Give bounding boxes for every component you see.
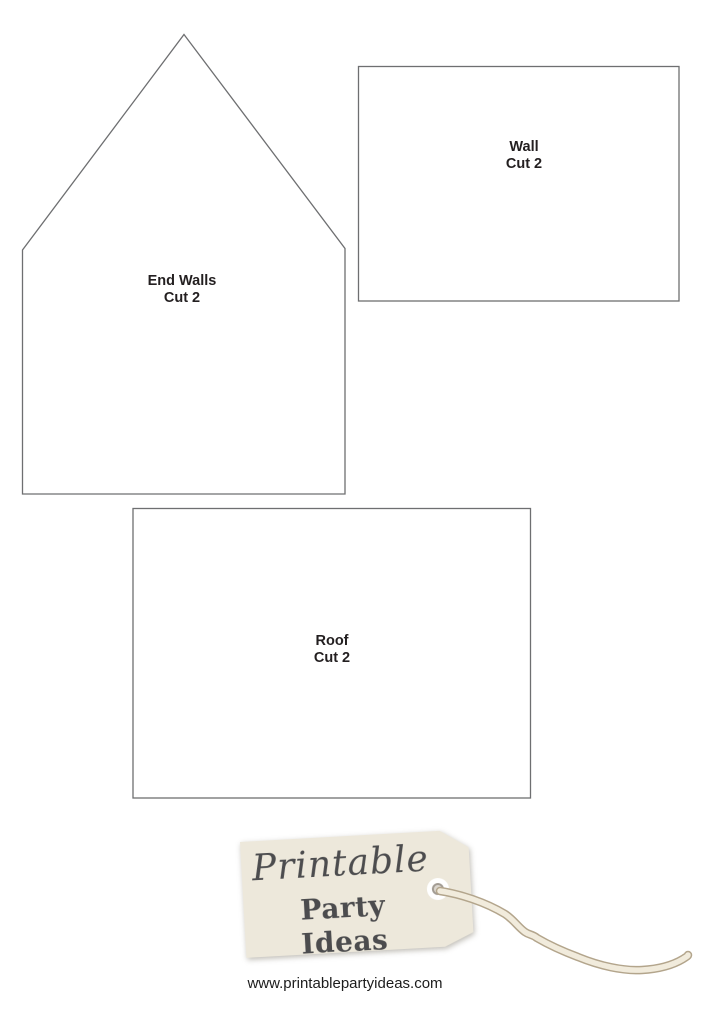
piece-name: End Walls (72, 273, 292, 290)
piece-cut-count: Cut 2 (414, 156, 634, 173)
wall-label: Wall Cut 2 (414, 139, 634, 172)
piece-cut-count: Cut 2 (72, 290, 292, 307)
piece-cut-count: Cut 2 (222, 650, 442, 667)
end-walls-label: End Walls Cut 2 (72, 273, 292, 306)
wall-outline (359, 67, 680, 302)
piece-name: Wall (414, 139, 634, 156)
tag-string (430, 880, 700, 985)
logo-script-text: Printable (248, 835, 432, 893)
website-url: www.printablepartyideas.com (245, 975, 445, 993)
string-fill (440, 891, 688, 970)
piece-name: Roof (222, 633, 442, 650)
printable-template-page: End Walls Cut 2 Wall Cut 2 Roof Cut 2 Pr… (0, 0, 721, 1024)
end-walls-outline (23, 35, 346, 495)
roof-label: Roof Cut 2 (222, 633, 442, 666)
